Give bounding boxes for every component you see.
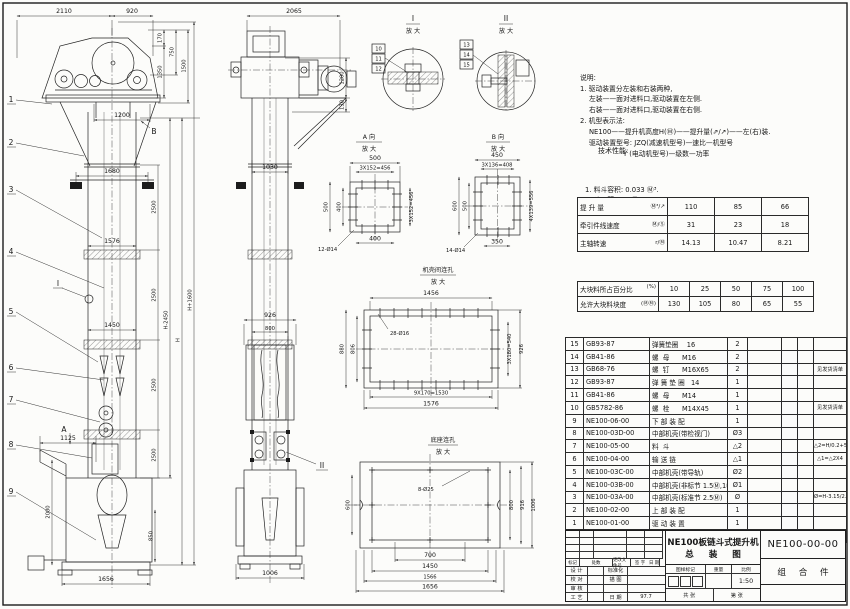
balloon-leaders bbox=[7, 100, 104, 540]
signature-row: 工 艺 日 期97.7 bbox=[566, 593, 665, 601]
note-line: 右装——面对进料口,驱动装置在右侧. bbox=[580, 105, 842, 116]
bom-table: 15GB93-87弹簧垫圈 16 2 14GB41-86螺 母 M16 2 13… bbox=[565, 337, 847, 543]
drawing-number: NE100-00-00 bbox=[761, 531, 845, 559]
mount-lug-right bbox=[142, 182, 154, 189]
dim-1006: 1006 bbox=[262, 570, 278, 577]
signature-row: 设 计 标准化 bbox=[566, 567, 665, 576]
bom-row: 6NE100-04-00输 送 链 △1 △1=△2X4 bbox=[566, 453, 847, 466]
title-block-revisions: 标记处数更改文件号签 字日 期 设 计 标准化 校 对 描 图 审 核 工 艺 … bbox=[566, 531, 666, 601]
dim-ch-1576: 1576 bbox=[423, 401, 439, 408]
note-line: 1. 驱动装置分左装和右装两种, bbox=[580, 84, 842, 95]
dim-a-456-right: 3X152=456 bbox=[409, 191, 415, 222]
balloon-7: 7 bbox=[9, 395, 14, 404]
scale-value: 1:50 bbox=[732, 574, 760, 588]
detail-i-mag-label: 放 大 bbox=[406, 27, 420, 35]
dim-bh-1656: 1656 bbox=[422, 584, 438, 591]
casing-holes-title: 机壳间连孔 bbox=[423, 266, 454, 274]
base-holes-view: 底座连孔 放 大 600 8-Ø25 800 916 1006 700 1450… bbox=[346, 436, 538, 593]
bom-row: 14GB41-86螺 母 M16 2 bbox=[566, 350, 847, 363]
detail-i-view: I 放 大 10 11 12 bbox=[372, 14, 445, 111]
dim-2500-1: 2500 bbox=[152, 200, 158, 213]
dim-ch-926: 926 bbox=[519, 344, 525, 354]
balloon-15: 15 bbox=[463, 63, 470, 69]
note-line: 左装——面对进料口,驱动装置在左侧. bbox=[580, 94, 842, 105]
dim-b-450: 450 bbox=[491, 152, 503, 159]
dim-2065: 2065 bbox=[286, 8, 302, 15]
dim-h-2450: H-2450 bbox=[164, 311, 170, 330]
dim-1576: 1576 bbox=[104, 238, 120, 245]
side-elevation-view: II 2065 1200 130 1030 926 800 1006 bbox=[228, 8, 356, 585]
drawing-title-line2: 总 装 图 bbox=[685, 548, 747, 560]
revision-header-cell: 更改文件号 bbox=[613, 559, 631, 566]
bom-row: 2NE100-02-00上 部 装 配 1 bbox=[566, 504, 847, 517]
dim-1450: 1450 bbox=[104, 322, 120, 329]
balloon-8: 8 bbox=[9, 440, 14, 449]
sheet-count-row: 共 张 第 张 bbox=[666, 589, 760, 601]
note-line: 2. 机型表示法: bbox=[580, 116, 842, 127]
casing-holes-label: 28-Ø16 bbox=[390, 330, 409, 337]
capacity-row: 牵引件线速度Ⓜ/Ⓢ 312318 bbox=[578, 216, 809, 234]
capacity-row: 提 升 量Ⓜ³/↗ 1108566 bbox=[578, 198, 809, 216]
lump-size-row: 允许大块料块度(ⓂⓂ) 130105806555 bbox=[578, 297, 814, 312]
balloon-13: 13 bbox=[463, 43, 470, 49]
balloon-6: 6 bbox=[9, 363, 14, 372]
dim-bh-700: 700 bbox=[424, 552, 436, 559]
dim-h-1600: H+1600 bbox=[188, 289, 194, 310]
revision-header: 标记处数更改文件号签 字日 期 bbox=[566, 559, 665, 567]
drawing-sheet: 2110 920 170 1350 750 1500 1200 1680 157… bbox=[0, 0, 850, 609]
note-line: 说明: bbox=[580, 73, 842, 84]
dim-1656: 1656 bbox=[98, 576, 114, 583]
dim-a-500-top: 500 bbox=[369, 155, 381, 162]
sheet-number: 第 张 bbox=[714, 589, 761, 601]
dim-1200: 1200 bbox=[114, 112, 130, 119]
dim-800: 800 bbox=[265, 326, 275, 332]
dim-a-400-bottom: 400 bbox=[369, 236, 381, 243]
revision-header-cell: 日 期 bbox=[649, 559, 660, 566]
dim-bh-600: 600 bbox=[346, 500, 352, 510]
bom-row: 12GB93-87弹 簧 垫 圈 14 1 bbox=[566, 376, 847, 389]
mark-label: 图样标记 bbox=[666, 565, 706, 573]
drawing-title: NE100板链斗式提升机 总 装 图 bbox=[666, 531, 760, 565]
dim-1500: 1500 bbox=[182, 59, 188, 72]
dim-920: 920 bbox=[126, 8, 138, 15]
signature-row: 校 对 描 图 bbox=[566, 576, 665, 585]
dim-ch-540: 3X180=540 bbox=[507, 333, 513, 364]
dim-1030: 1030 bbox=[262, 164, 278, 171]
bom-row: 11GB41-86螺 母 M14 1 bbox=[566, 389, 847, 402]
dim-b-556: 4X139=556 bbox=[529, 190, 535, 221]
balloon-11: 11 bbox=[375, 57, 382, 63]
dim-ch-880: 880 bbox=[340, 344, 346, 354]
base-holes-title: 底座连孔 bbox=[431, 436, 456, 444]
bom-row: 3NE100-03A-00中部机壳(标准节 2.5Ⓜ) Ø Ø=H-3.15/2… bbox=[566, 491, 847, 504]
dim-b-350: 350 bbox=[491, 239, 503, 246]
weight-value bbox=[706, 574, 732, 588]
base-holes-mag-label: 放 大 bbox=[436, 448, 450, 456]
view-b-holes-label: 14-Ø14 bbox=[446, 247, 466, 254]
detail-i-callout-label: I bbox=[57, 279, 59, 288]
balloon-4: 4 bbox=[9, 247, 14, 256]
bom-row: 9NE100-06-00下 部 装 配 1 bbox=[566, 414, 847, 427]
dim-b-600: 600 bbox=[453, 201, 459, 211]
detail-ii-callout-label: II bbox=[320, 461, 324, 470]
section-b-label: B bbox=[151, 127, 156, 136]
view-b-flange: B 向 放 大 450 3X136=408 600 500 4X139=556 … bbox=[446, 133, 535, 254]
base-holes-label: 8-Ø25 bbox=[418, 486, 434, 493]
dim-b-500: 500 bbox=[463, 201, 469, 211]
bom-row: 7NE100-05-00料 斗 △2 △2=H/0.2+5.75 bbox=[566, 440, 847, 453]
tech-title: 技术性能: bbox=[598, 146, 628, 156]
front-elevation-view: 2110 920 170 1350 750 1500 1200 1680 157… bbox=[7, 8, 200, 588]
lump-size-table: 大块料所占百分比(%) 10255075100 允许大块料块度(ⓂⓂ) 1301… bbox=[577, 281, 814, 312]
casing-joint-holes-view: 机壳间连孔 放 大 1456 880 806 28-Ø16 3X180=540 … bbox=[340, 266, 526, 410]
signature-rows: 设 计 标准化 校 对 描 图 审 核 工 艺 日 期97.7 bbox=[566, 567, 665, 601]
bom-row: 10GB5782-86螺 栓 M14X45 1 见发货清单 bbox=[566, 401, 847, 414]
dim-a-456-top: 3X152=456 bbox=[359, 166, 390, 172]
dim-bh-1006: 1006 bbox=[531, 498, 537, 511]
mount-lug-left bbox=[70, 182, 82, 189]
dim-ch-806: 806 bbox=[351, 344, 357, 354]
scale-label: 比例 bbox=[732, 565, 760, 573]
balloon-1: 1 bbox=[9, 95, 14, 104]
dim-a-400-left: 400 bbox=[337, 202, 343, 212]
lump-size-row: 大块料所占百分比(%) 10255075100 bbox=[578, 282, 814, 297]
dim-1680: 1680 bbox=[104, 168, 120, 175]
note-line: NE100——提升机高度H(Ⓜ)——提升量(⇗/↗)——左(右)装. bbox=[580, 127, 842, 138]
balloon-14: 14 bbox=[463, 53, 470, 59]
detail-ii-view: II 放 大 13 14 15 bbox=[460, 14, 537, 112]
dim-h: H bbox=[176, 338, 182, 342]
stamp-header: 图样标记 重量 比例 bbox=[666, 565, 760, 574]
detail-ii-mag-label: 放 大 bbox=[499, 27, 513, 35]
dim-ch-1456: 1456 bbox=[423, 290, 439, 297]
stamp-body: 1:50 bbox=[666, 574, 760, 589]
title-block-right: NE100-00-00 组 合 件 bbox=[761, 531, 845, 601]
balloon-9: 9 bbox=[9, 487, 14, 496]
tech-item: 1. 料斗容积: 0.033 Ⓜ³. bbox=[585, 186, 835, 196]
sheets-total: 共 张 bbox=[666, 589, 714, 601]
detail-i-title: I bbox=[412, 14, 414, 23]
bom-row: 1NE100-01-00驱 动 装 置 1 bbox=[566, 517, 847, 530]
title-block: 标记处数更改文件号签 字日 期 设 计 标准化 校 对 描 图 审 核 工 艺 … bbox=[565, 530, 846, 602]
bom-row: 15GB93-87弹簧垫圈 16 2 bbox=[566, 338, 847, 351]
bom-row: 8NE100-03D-00中部机壳(带检视门) Ø3 bbox=[566, 427, 847, 440]
view-a-mag-label: 放 大 bbox=[362, 145, 376, 153]
section-a-label: A bbox=[61, 425, 67, 434]
title-block-blank bbox=[761, 585, 845, 601]
dim-bh-800: 800 bbox=[509, 500, 515, 510]
revision-grid bbox=[566, 531, 665, 559]
view-a-title: A 向 bbox=[363, 133, 375, 141]
dim-2110: 2110 bbox=[56, 8, 72, 15]
dim-side-1200: 1200 bbox=[340, 71, 346, 84]
dim-850: 850 bbox=[149, 531, 155, 541]
mark-boxes bbox=[666, 574, 706, 588]
bom-row: 5NE100-03C-00中部机壳(带导轨) Ø2 bbox=[566, 465, 847, 478]
dim-2500-2: 2500 bbox=[152, 288, 158, 301]
dim-2500-3: 2500 bbox=[152, 378, 158, 391]
dim-130: 130 bbox=[340, 100, 346, 110]
dim-a-500-left: 500 bbox=[324, 202, 330, 212]
notes-block: 说明:1. 驱动装置分左装和右装两种, 左装——面对进料口,驱动装置在左侧. 右… bbox=[580, 40, 842, 160]
signature-row: 审 核 bbox=[566, 585, 665, 594]
dim-ch-1530: 9X170=1530 bbox=[414, 391, 448, 397]
dim-b-408: 3X136=408 bbox=[481, 163, 512, 169]
weight-label: 重量 bbox=[706, 565, 732, 573]
title-block-center: NE100板链斗式提升机 总 装 图 图样标记 重量 比例 1:50 共 张 第… bbox=[666, 531, 761, 601]
dim-bh-1566: 1566 bbox=[423, 575, 436, 581]
view-a-holes-label: 12-Ø14 bbox=[318, 246, 338, 253]
balloon-3: 3 bbox=[9, 185, 14, 194]
dim-2500-4: 2500 bbox=[152, 448, 158, 461]
dim-1350: 1350 bbox=[158, 65, 164, 78]
drawing-title-line1: NE100板链斗式提升机 bbox=[667, 536, 758, 548]
dim-2000: 2000 bbox=[46, 505, 52, 518]
capacity-table: 提 升 量Ⓜ³/↗ 1108566 牵引件线速度Ⓜ/Ⓢ 312318 主轴转速r… bbox=[577, 197, 809, 252]
dim-1125: 1125 bbox=[60, 435, 76, 442]
view-a-flange: A 向 放 大 500 3X152=456 500 400 3X152=456 … bbox=[318, 133, 415, 253]
balloon-2: 2 bbox=[9, 138, 14, 147]
casing-holes-mag-label: 放 大 bbox=[431, 278, 445, 286]
balloon-12: 12 bbox=[375, 67, 382, 73]
dim-750: 750 bbox=[170, 47, 176, 57]
bom-row: 13GB68-76螺 钉 M16X65 2 见发货清单 bbox=[566, 363, 847, 376]
balloon-5: 5 bbox=[9, 307, 14, 316]
revision-header-cell: 签 字 bbox=[631, 559, 649, 566]
assembly-kind: 组 合 件 bbox=[761, 559, 845, 585]
dim-bh-1450: 1450 bbox=[422, 563, 438, 570]
view-b-title: B 向 bbox=[492, 133, 504, 141]
capacity-row: 主轴转速r/Ⓜ 14.1310.478.21 bbox=[578, 234, 809, 252]
dim-926: 926 bbox=[264, 312, 276, 319]
revision-header-cell: 标记 bbox=[566, 559, 580, 566]
balloon-10: 10 bbox=[375, 47, 382, 53]
revision-header-cell: 处数 bbox=[580, 559, 613, 566]
detail-ii-title: II bbox=[504, 14, 508, 23]
bom-row: 4NE100-03B-00中部机壳(非标节 1.5Ⓜ,1Ⓜ) Ø1 bbox=[566, 478, 847, 491]
dim-bh-916: 916 bbox=[520, 500, 526, 510]
dim-170: 170 bbox=[158, 33, 164, 43]
